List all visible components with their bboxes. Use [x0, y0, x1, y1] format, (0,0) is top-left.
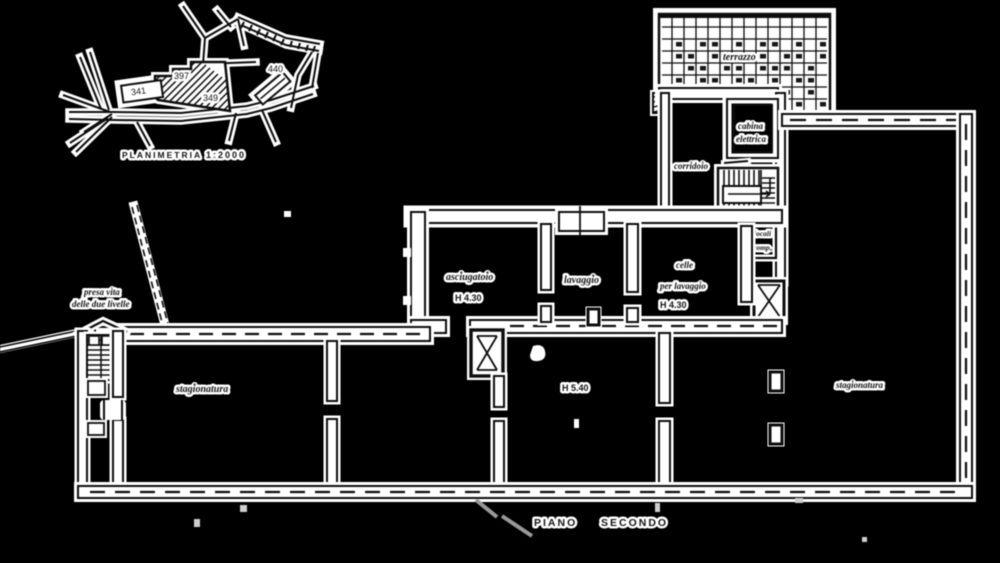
svg-text:comp.: comp. — [753, 243, 772, 252]
svg-text:H 5.40: H 5.40 — [562, 383, 589, 393]
svg-text:stagionatura: stagionatura — [835, 380, 884, 390]
svg-text:asciugatoio: asciugatoio — [446, 272, 493, 283]
svg-text:locali: locali — [754, 229, 772, 238]
svg-text:per lavaggio: per lavaggio — [659, 281, 706, 291]
svg-text:H 4.30: H 4.30 — [455, 293, 482, 303]
svg-text:397: 397 — [174, 71, 189, 81]
svg-text:341: 341 — [130, 85, 146, 97]
svg-text:cabina: cabina — [738, 121, 764, 131]
svg-text:349: 349 — [203, 93, 218, 103]
svg-text:terrazzo: terrazzo — [723, 52, 756, 63]
svg-text:celle: celle — [676, 260, 693, 270]
svg-text:stagionatura: stagionatura — [175, 384, 228, 395]
svg-text:440: 440 — [268, 64, 283, 74]
svg-text:corridoio: corridoio — [674, 161, 709, 171]
svg-text:SECONDO: SECONDO — [601, 517, 668, 529]
svg-text:PIANO: PIANO — [534, 517, 577, 529]
svg-text:lavaggio: lavaggio — [564, 275, 599, 286]
svg-text:delle due livelle: delle due livelle — [72, 299, 129, 309]
svg-text:presa vita: presa vita — [83, 287, 120, 297]
svg-text:1:2000: 1:2000 — [206, 150, 246, 160]
svg-text:PLANIMETRIA: PLANIMETRIA — [122, 150, 202, 160]
svg-text:elettrica: elettrica — [736, 134, 766, 144]
svg-text:H 4.30: H 4.30 — [660, 300, 687, 310]
